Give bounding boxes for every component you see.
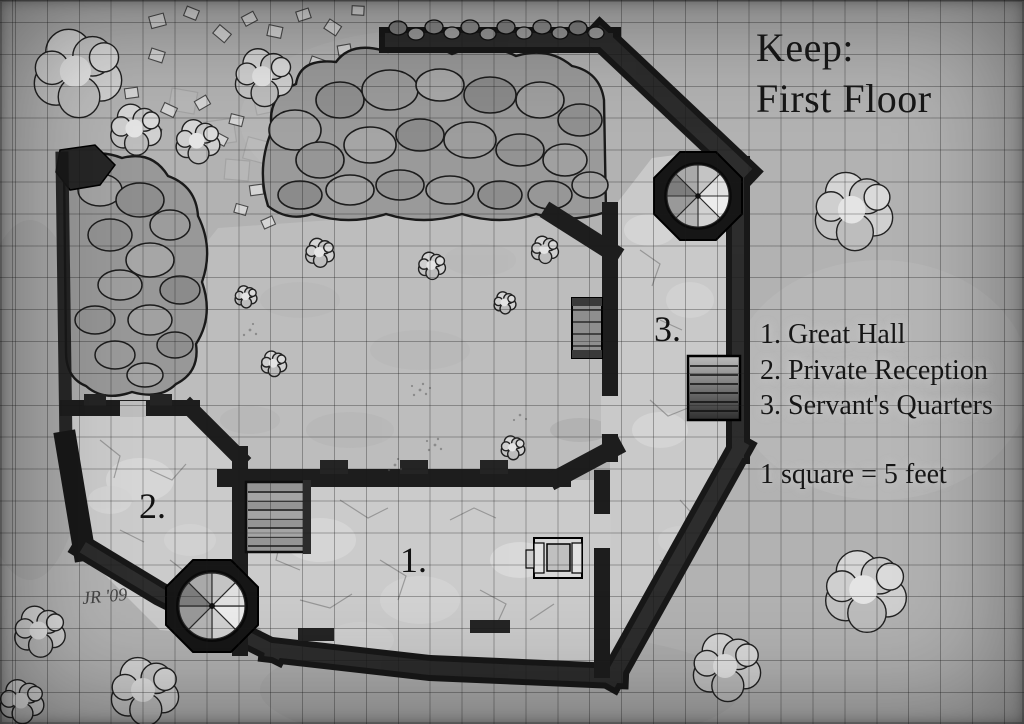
- room-marker-private-reception: 2.: [139, 485, 166, 527]
- scale-note: 1 square = 5 feet: [760, 459, 947, 491]
- spiral-staircase-southwest: [166, 560, 258, 652]
- legend-item-great-hall: 1. Great Hall: [760, 317, 993, 353]
- spiral-staircase-northeast: [654, 152, 742, 240]
- legend-item-private-reception: 2. Private Reception: [760, 353, 993, 389]
- keep-map: Keep: First Floor 1. Great Hall 2. Priva…: [0, 0, 1024, 724]
- north-rubble: [263, 45, 608, 220]
- throne: [526, 538, 582, 578]
- courtyard-stairs: [246, 480, 311, 554]
- map-title: Keep: First Floor: [756, 22, 932, 124]
- artist-signature: JR '09: [81, 584, 128, 609]
- legend: 1. Great Hall 2. Private Reception 3. Se…: [760, 317, 993, 424]
- wall-stairs: [572, 298, 602, 358]
- room-marker-great-hall: 1.: [400, 539, 427, 581]
- room-marker-servants-quarters: 3.: [654, 308, 681, 350]
- map-title-line2: First Floor: [756, 73, 932, 124]
- map-title-line1: Keep:: [756, 22, 932, 73]
- servants-stairs: [688, 356, 740, 420]
- legend-item-servants-quarters: 3. Servant's Quarters: [760, 388, 993, 424]
